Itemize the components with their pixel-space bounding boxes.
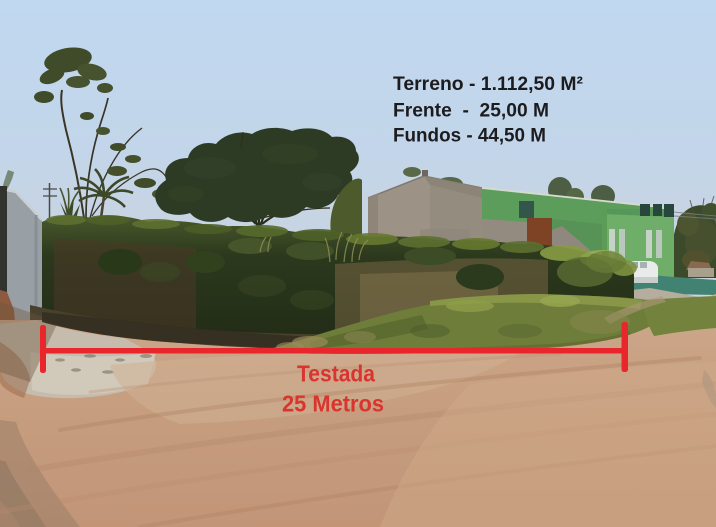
svg-text:Frente - 25,00 M: Frente - 25,00 M [393,100,549,122]
svg-text:Terreno - 1.112,50 M²: Terreno - 1.112,50 M² [393,73,584,95]
svg-text:Fundos - 44,50 M: Fundos - 44,50 M [393,125,546,147]
svg-text:25 Metros: 25 Metros [282,391,384,417]
svg-text:Testada: Testada [297,361,376,387]
